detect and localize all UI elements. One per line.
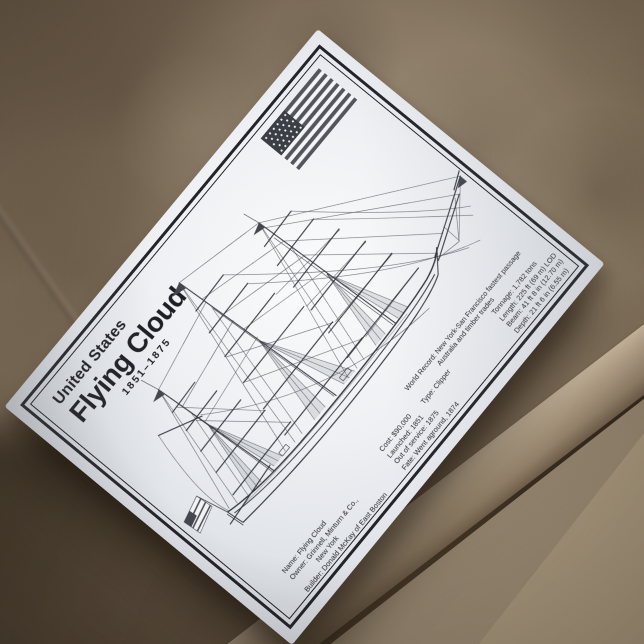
scene: United States Flying Cloud 1851–1875 [0,0,644,644]
